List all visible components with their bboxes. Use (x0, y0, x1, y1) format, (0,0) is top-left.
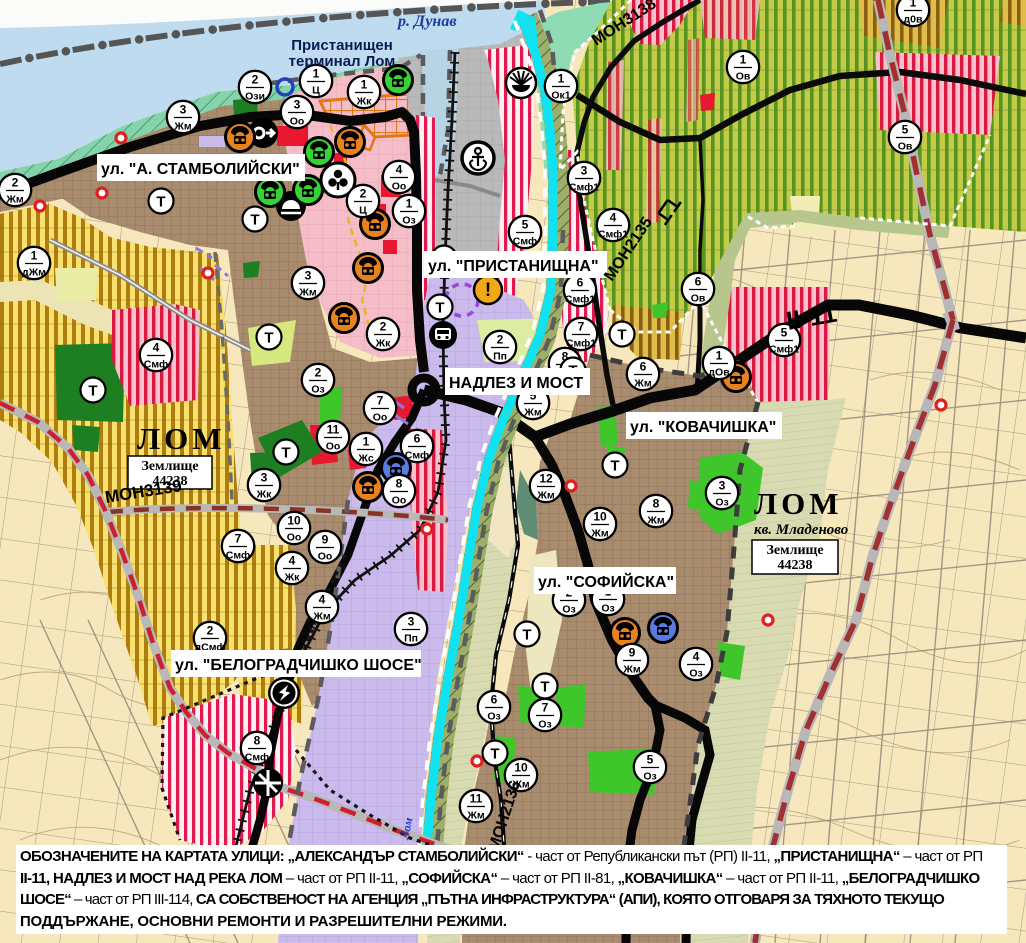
svg-text:5: 5 (522, 218, 529, 232)
svg-text:Ов: Ов (898, 141, 913, 153)
svg-text:Т: Т (156, 194, 165, 211)
svg-text:Оо: Оо (373, 412, 388, 424)
svg-text:2: 2 (315, 366, 322, 380)
svg-text:!: ! (485, 280, 491, 301)
svg-text:Смф1: Смф1 (565, 294, 595, 306)
svg-text:7: 7 (377, 394, 384, 408)
svg-text:Оз: Оз (538, 719, 551, 731)
svg-text:Оз: Оз (601, 603, 614, 615)
svg-text:Т: Т (610, 458, 619, 475)
svg-text:Т: Т (264, 330, 273, 347)
svg-text:Жм: Жм (633, 378, 651, 390)
svg-text:Землище: Землище (766, 543, 823, 558)
svg-text:ул. "БЕЛОГРАДЧИШКО ШОСЕ": ул. "БЕЛОГРАДЧИШКО ШОСЕ" (175, 657, 422, 674)
svg-text:2: 2 (252, 73, 259, 87)
svg-text:Смф1: Смф1 (598, 229, 628, 241)
svg-text:4: 4 (319, 593, 326, 607)
svg-text:3: 3 (180, 103, 187, 117)
svg-text:Оз: Оз (487, 711, 500, 723)
svg-text:ул. "ПРИСТАНИЩНА": ул. "ПРИСТАНИЩНА" (428, 258, 599, 275)
svg-text:9: 9 (322, 533, 329, 547)
svg-text:Оо: Оо (318, 551, 333, 563)
svg-text:3: 3 (719, 479, 726, 493)
svg-text:4: 4 (610, 211, 617, 225)
svg-text:Жм: Жм (646, 515, 664, 527)
svg-text:Смф: Смф (245, 752, 269, 764)
svg-text:Жк: Жк (356, 96, 372, 108)
svg-text:6: 6 (414, 432, 421, 446)
svg-text:Оо: Оо (290, 116, 305, 128)
svg-text:7: 7 (235, 532, 242, 546)
svg-text:Смф: Смф (226, 550, 250, 562)
svg-text:Оз: Оз (402, 215, 415, 227)
svg-text:3: 3 (305, 269, 312, 283)
svg-text:дЖм: дЖм (22, 267, 46, 279)
svg-text:ул. "СОФИЙСКА": ул. "СОФИЙСКА" (538, 572, 674, 591)
svg-text:Жм: Жм (622, 664, 640, 676)
svg-text:3: 3 (294, 98, 301, 112)
svg-text:Жм: Жм (523, 407, 541, 419)
svg-text:Оо: Оо (326, 441, 341, 453)
svg-text:Оз: Оз (643, 771, 656, 783)
svg-text:Пристанищен: Пристанищен (291, 37, 393, 54)
svg-text:Ц: Ц (312, 85, 320, 97)
svg-text:Ц: Ц (359, 205, 367, 217)
svg-text:Оо: Оо (392, 181, 407, 193)
svg-text:НАДЛЕЗ И МОСТ: НАДЛЕЗ И МОСТ (449, 375, 583, 392)
svg-text:Жм: Жм (312, 611, 330, 623)
svg-text:дОв: дОв (708, 367, 730, 379)
svg-text:5: 5 (902, 123, 909, 137)
svg-text:Землище: Землище (141, 459, 198, 474)
svg-text:Жк: Жк (284, 572, 300, 584)
svg-text:Жм: Жм (466, 810, 484, 822)
svg-text:Жм: Жм (298, 287, 316, 299)
svg-text:Т: Т (435, 300, 444, 317)
svg-text:6: 6 (491, 693, 498, 707)
svg-text:4: 4 (396, 163, 403, 177)
svg-text:Смф: Смф (144, 359, 168, 371)
svg-text:11: 11 (327, 423, 340, 437)
svg-text:3: 3 (408, 615, 415, 629)
svg-text:Оз: Оз (689, 668, 702, 680)
svg-text:ЛОМ: ЛОМ (137, 421, 225, 456)
svg-text:ул. "КОВАЧИШКА": ул. "КОВАЧИШКА" (630, 419, 776, 436)
svg-text:терминал Лом: терминал Лом (289, 53, 396, 70)
svg-text:Жм: Жм (5, 194, 23, 206)
svg-text:8: 8 (396, 477, 403, 491)
svg-text:Ок1: Ок1 (551, 90, 570, 102)
svg-text:Жм: Жм (590, 528, 608, 540)
svg-text:Ози: Ози (245, 91, 265, 103)
svg-text:Смф1: Смф1 (569, 182, 599, 194)
svg-text:Жм: Жм (173, 121, 191, 133)
svg-text:4: 4 (153, 341, 160, 355)
svg-text:р. Дунав: р. Дунав (396, 13, 456, 30)
svg-text:1: 1 (363, 435, 370, 449)
svg-text:4: 4 (693, 650, 700, 664)
svg-text:Т: Т (88, 383, 97, 400)
svg-text:44238: 44238 (778, 558, 813, 573)
svg-text:5: 5 (647, 753, 654, 767)
svg-text:2: 2 (207, 624, 214, 638)
svg-text:10: 10 (287, 514, 301, 528)
svg-text:Оо: Оо (287, 532, 302, 544)
svg-text:Смф: Смф (513, 236, 537, 248)
svg-text:8: 8 (254, 734, 261, 748)
svg-text:8: 8 (653, 497, 660, 511)
svg-text:Т: Т (281, 445, 290, 462)
svg-text:1: 1 (558, 72, 565, 86)
svg-text:3: 3 (261, 471, 268, 485)
svg-text:2: 2 (497, 333, 504, 347)
svg-text:Ов: Ов (736, 71, 751, 83)
svg-text:6: 6 (640, 360, 647, 374)
svg-text:7: 7 (578, 320, 585, 334)
svg-text:Т: Т (250, 212, 259, 229)
svg-text:Оз: Оз (715, 497, 728, 509)
svg-text:3: 3 (581, 164, 588, 178)
svg-text:Жм: Жм (536, 490, 554, 502)
svg-text:9: 9 (629, 646, 636, 660)
svg-text:2: 2 (380, 320, 387, 334)
svg-text:Смф: Смф (405, 450, 429, 462)
svg-text:Т: Т (522, 627, 531, 644)
svg-text:ул. "А. СТАМБОЛИЙСКИ": ул. "А. СТАМБОЛИЙСКИ" (101, 159, 300, 178)
svg-text:Пп: Пп (404, 633, 418, 645)
svg-text:Жс: Жс (357, 453, 373, 465)
svg-text:4: 4 (289, 554, 296, 568)
svg-text:Оо: Оо (392, 495, 407, 507)
svg-text:Жк: Жк (375, 338, 391, 350)
svg-text:1: 1 (361, 78, 368, 92)
svg-text:Оз: Оз (311, 384, 324, 396)
svg-text:Жк: Жк (256, 489, 272, 501)
svg-text:кв. Младеново: кв. Младеново (754, 522, 848, 538)
svg-text:1: 1 (910, 0, 917, 10)
svg-text:2: 2 (12, 176, 19, 190)
svg-text:11: 11 (470, 792, 483, 806)
svg-text:Т: Т (490, 746, 499, 763)
svg-text:Ов: Ов (691, 293, 706, 305)
svg-text:7: 7 (542, 701, 549, 715)
svg-text:6: 6 (695, 275, 702, 289)
svg-text:ЛОМ: ЛОМ (754, 486, 842, 521)
svg-text:Смф1: Смф1 (769, 344, 799, 356)
svg-text:12: 12 (539, 472, 553, 486)
svg-text:1: 1 (716, 349, 723, 363)
svg-text:Пп: Пп (493, 351, 507, 363)
svg-text:Т: Т (540, 679, 549, 696)
svg-text:10: 10 (593, 510, 607, 524)
svg-text:1: 1 (31, 249, 38, 263)
svg-text:Т: Т (617, 327, 626, 344)
svg-text:1: 1 (740, 53, 747, 67)
svg-text:10: 10 (514, 761, 528, 775)
svg-text:д0в: д0в (904, 14, 924, 26)
svg-text:2: 2 (360, 187, 367, 201)
svg-text:Оз: Оз (562, 604, 575, 616)
svg-text:1: 1 (406, 197, 413, 211)
